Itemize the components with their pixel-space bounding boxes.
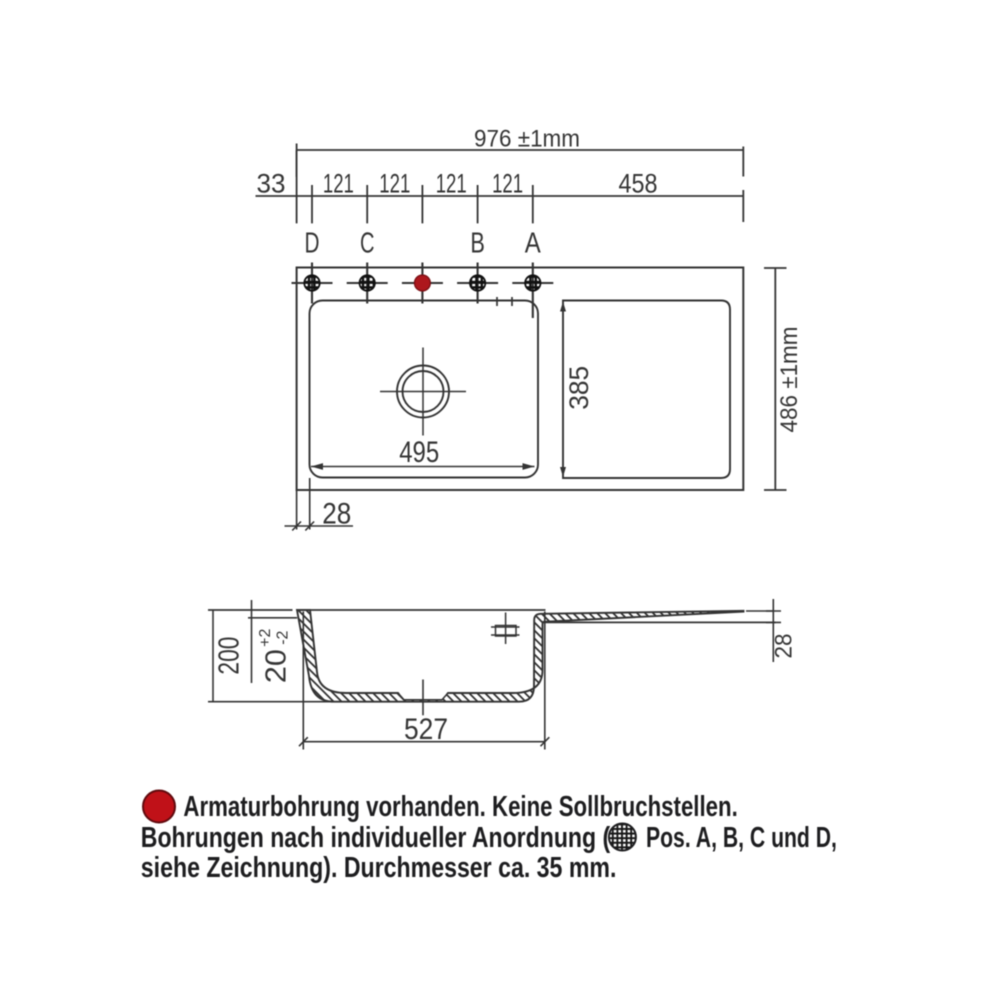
svg-text:+2: +2 bbox=[257, 628, 274, 646]
svg-text:527: 527 bbox=[404, 713, 448, 746]
svg-text:121: 121 bbox=[323, 169, 354, 199]
svg-text:siehe Zeichnung). Durchmesser: siehe Zeichnung). Durchmesser ca. 35 mm. bbox=[141, 850, 617, 883]
svg-text:486 ±1mm: 486 ±1mm bbox=[776, 327, 803, 433]
svg-text:976 ±1mm: 976 ±1mm bbox=[474, 126, 580, 153]
svg-text:20: 20 bbox=[261, 649, 293, 683]
svg-text:121: 121 bbox=[492, 169, 523, 199]
svg-text:A: A bbox=[525, 227, 542, 259]
svg-text:D: D bbox=[305, 227, 320, 259]
svg-text:Armaturbohrung vorhanden. Kein: Armaturbohrung vorhanden. Keine Sollbruc… bbox=[183, 791, 737, 822]
svg-text:121: 121 bbox=[379, 169, 410, 199]
svg-text:Pos. A, B, C und D,: Pos. A, B, C und D, bbox=[646, 822, 837, 854]
svg-text:28: 28 bbox=[771, 634, 798, 659]
svg-text:C: C bbox=[360, 227, 375, 259]
svg-text:385: 385 bbox=[564, 366, 594, 410]
svg-text:121: 121 bbox=[436, 169, 467, 199]
svg-text:495: 495 bbox=[399, 436, 439, 469]
svg-text:458: 458 bbox=[619, 169, 658, 199]
svg-text:200: 200 bbox=[213, 637, 245, 675]
svg-text:Bohrungen nach individueller A: Bohrungen nach individueller Anordnung ( bbox=[141, 820, 611, 853]
svg-text:33: 33 bbox=[257, 169, 286, 199]
svg-text:B: B bbox=[470, 227, 485, 259]
svg-text:28: 28 bbox=[322, 498, 351, 531]
svg-text:-2: -2 bbox=[275, 630, 292, 644]
